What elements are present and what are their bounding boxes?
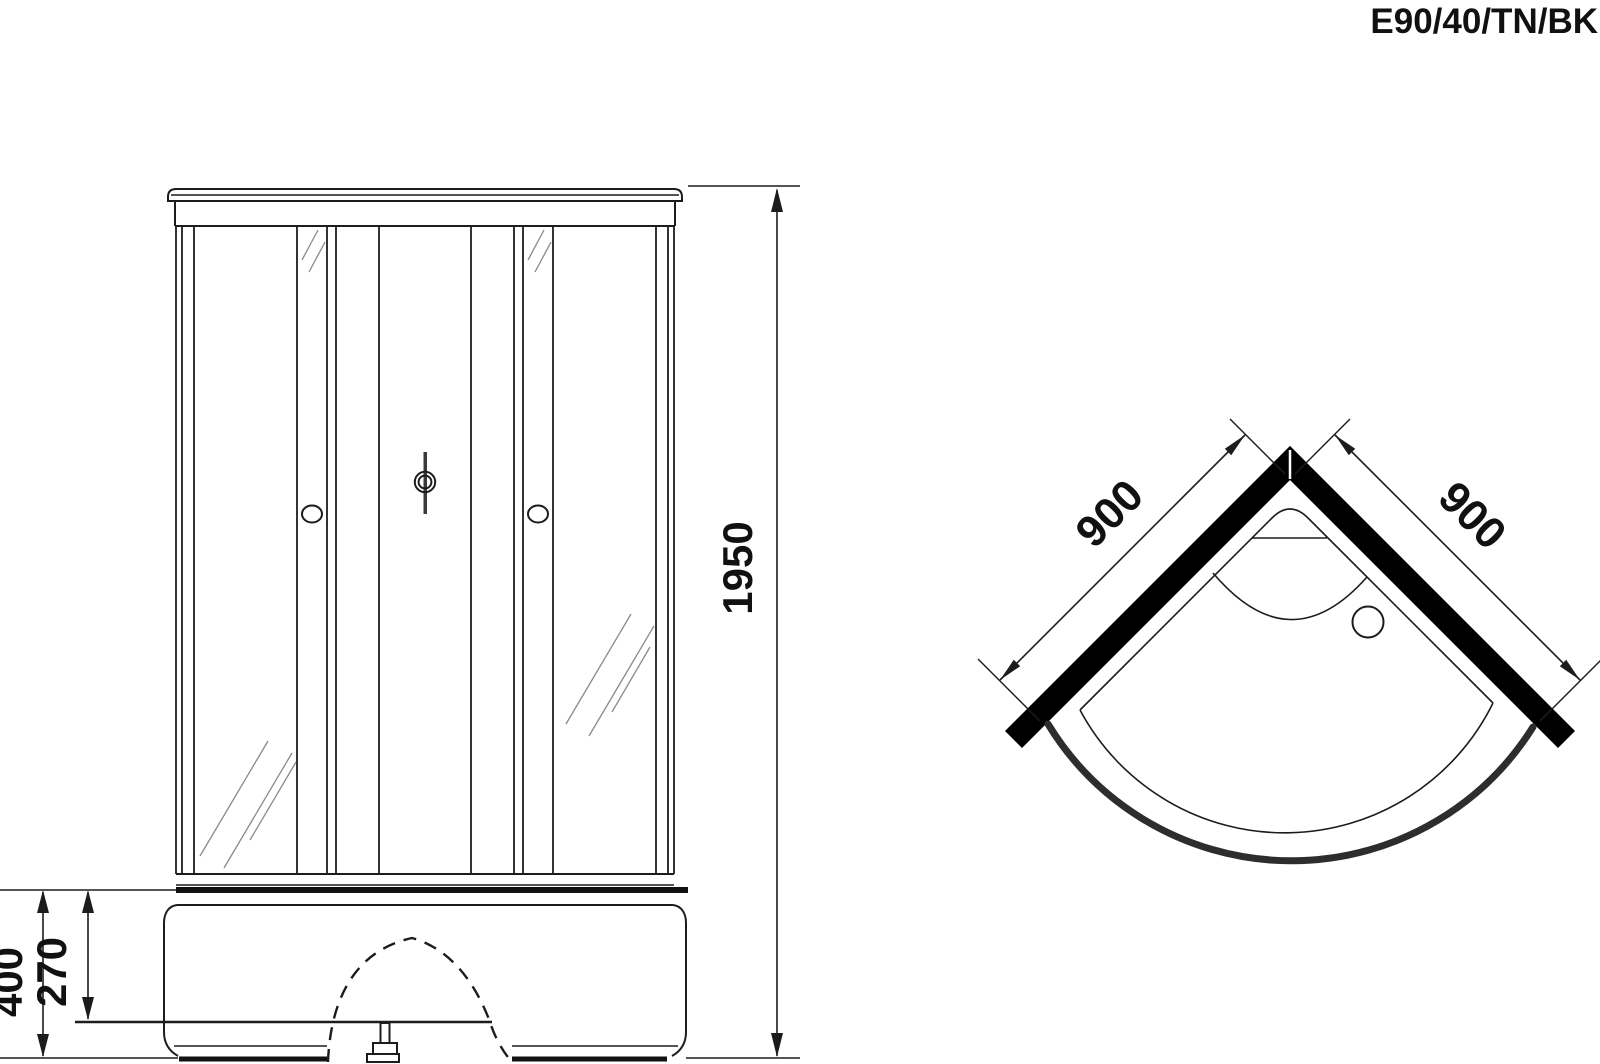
drain-hole-circle xyxy=(1353,607,1384,638)
tray-left-side xyxy=(164,905,178,1056)
drain-pipe-neck xyxy=(381,1023,390,1043)
door-knob-right xyxy=(528,506,548,523)
shower-tray-front xyxy=(75,905,686,1062)
dimension-overall-height: 1950 xyxy=(688,186,800,1057)
reflection-stroke xyxy=(224,753,292,868)
reflection-stroke xyxy=(566,614,631,724)
center-door-handle xyxy=(415,452,435,514)
reflection-stroke xyxy=(309,242,325,272)
arrow-up-icon xyxy=(37,890,49,913)
reflection-stroke xyxy=(528,230,544,260)
glass-reflections xyxy=(200,230,654,868)
arrow-up-icon xyxy=(82,890,94,913)
arrow-down-icon xyxy=(82,997,94,1020)
wall-left xyxy=(1005,446,1307,748)
handle-bar xyxy=(424,452,428,514)
model-code-title: E90/40/TN/BK xyxy=(1370,2,1598,41)
dimension-right-side: 900 xyxy=(1295,419,1600,721)
dimension-label-900-left: 900 xyxy=(1066,470,1153,557)
dimension-tray-depth: 270 xyxy=(28,890,94,1020)
dimension-label-1950: 1950 xyxy=(714,521,761,614)
wall-right xyxy=(1273,446,1575,748)
dimension-left-side: 900 xyxy=(978,419,1285,721)
reflection-stroke xyxy=(612,647,650,712)
dimension-label-270: 270 xyxy=(28,937,75,1007)
front-view: 1950 400 270 xyxy=(0,186,800,1062)
drain-pipe-foot xyxy=(367,1054,399,1062)
tray-right-side xyxy=(672,905,686,1056)
tray-outer-rim-arc xyxy=(1048,724,1533,861)
drain-pipe xyxy=(367,1023,399,1062)
reflection-stroke xyxy=(250,762,296,840)
seat-ledge xyxy=(1213,538,1367,620)
dimension-label-900-right: 900 xyxy=(1429,472,1516,559)
tray-inner-front-arc xyxy=(1080,703,1493,833)
seat-front-arc xyxy=(1213,573,1367,620)
technical-drawing: E90/40/TN/BK xyxy=(0,0,1600,1064)
arrow-down-icon xyxy=(771,1033,783,1057)
reflection-stroke xyxy=(535,242,551,272)
reflection-stroke xyxy=(200,741,268,856)
arrow-up-icon xyxy=(771,188,783,212)
reflection-stroke xyxy=(302,230,318,260)
dimension-label-400: 400 xyxy=(0,947,31,1017)
extension-line xyxy=(1295,419,1350,474)
drawing-sheet: E90/40/TN/BK xyxy=(0,0,1600,1064)
arrow-down-icon xyxy=(37,1034,49,1057)
drain-pipe-step xyxy=(373,1043,397,1054)
top-view: 900 900 xyxy=(978,419,1600,861)
frame-and-panel-lines xyxy=(176,226,674,874)
extension-line xyxy=(1230,419,1285,474)
reflection-stroke xyxy=(589,626,654,736)
door-knob-left xyxy=(302,506,322,523)
drain-access-dome-dashed xyxy=(328,938,512,1062)
top-frame-band xyxy=(175,201,675,226)
